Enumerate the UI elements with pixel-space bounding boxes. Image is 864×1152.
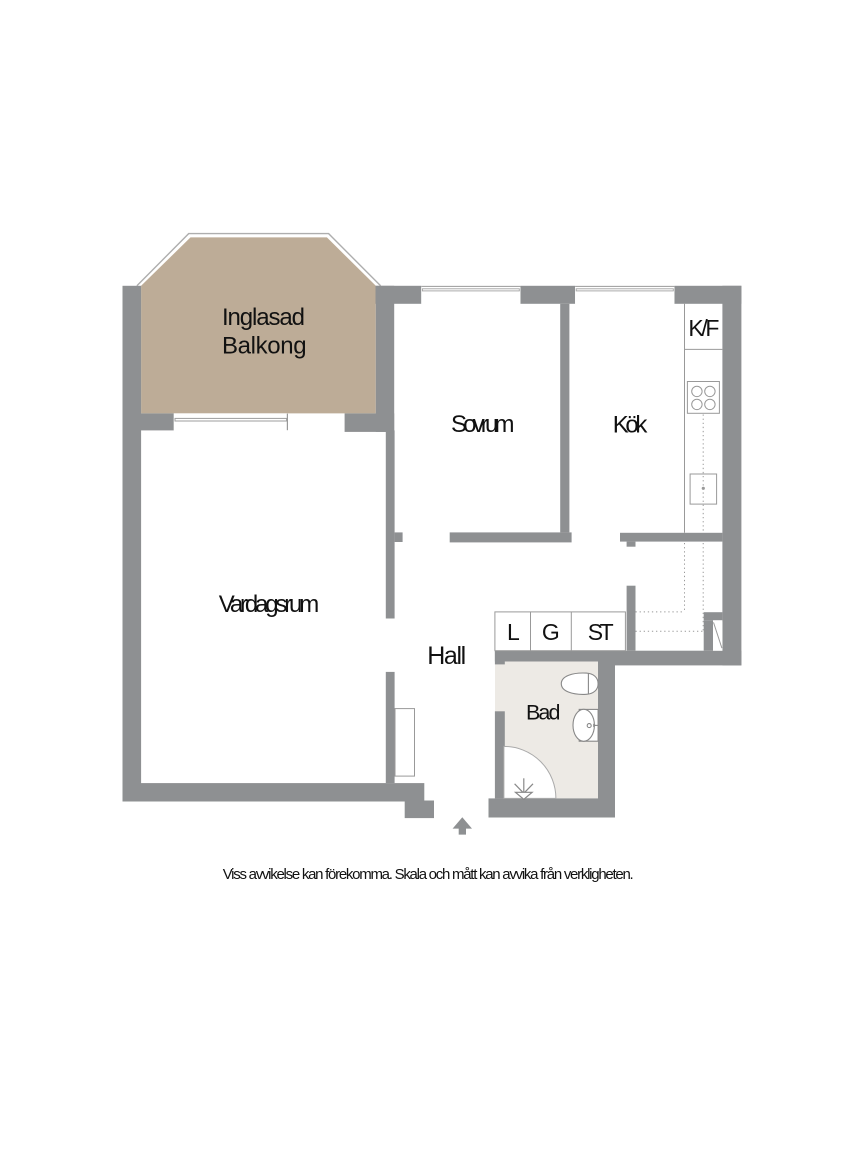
svg-text:Hall: Hall	[427, 642, 466, 670]
svg-text:Vardagsrum: Vardagsrum	[219, 591, 320, 618]
svg-text:Sovrum: Sovrum	[451, 411, 515, 438]
svg-text:Bad: Bad	[526, 701, 561, 725]
svg-text:Balkong: Balkong	[222, 333, 307, 360]
svg-text:Inglasad: Inglasad	[222, 304, 305, 331]
svg-text:Kök: Kök	[613, 412, 649, 439]
svg-text:Viss avvikelse kan förekomma.: Viss avvikelse kan förekomma. Skala och …	[223, 866, 634, 883]
svg-text:ST: ST	[588, 619, 614, 645]
svg-text:K/F: K/F	[688, 315, 719, 341]
svg-text:L: L	[507, 619, 520, 645]
svg-text:G: G	[542, 619, 560, 645]
